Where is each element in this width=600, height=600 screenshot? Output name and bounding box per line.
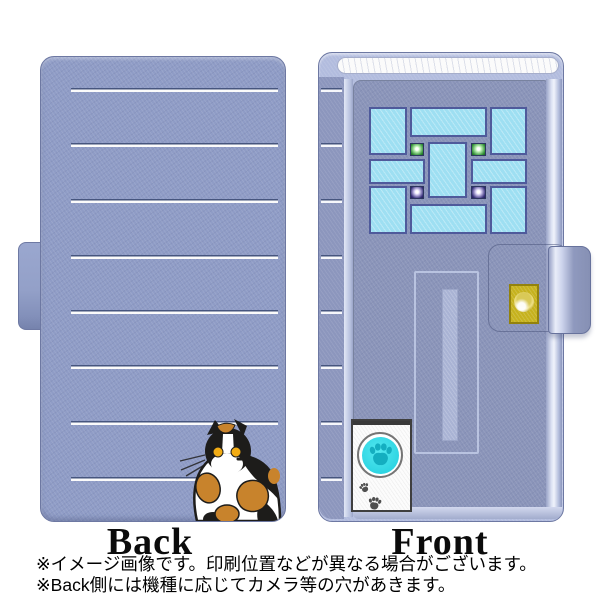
cat-eye-left	[213, 447, 223, 457]
doorbell-box	[351, 419, 412, 512]
mail-slot	[442, 289, 458, 441]
gold-snap-plate	[509, 284, 539, 324]
case-front-cover	[318, 52, 564, 522]
paw-prints-icon	[366, 496, 383, 511]
siding-stripe	[71, 88, 278, 92]
window-pane	[369, 159, 425, 184]
green-lamp	[471, 143, 486, 156]
window-pane-center	[428, 142, 467, 198]
window-pane	[471, 159, 527, 184]
window-pane	[490, 186, 527, 234]
doorbell-top-strip	[353, 421, 410, 425]
siding-stripe	[71, 255, 278, 259]
spine-stripe	[321, 477, 342, 481]
cat-eye-right	[231, 447, 241, 457]
purple-lamp	[410, 186, 424, 199]
door-window-grid	[366, 103, 529, 235]
gold-knob-icon	[514, 292, 534, 312]
paw-prints-icon	[357, 481, 371, 495]
window-pane	[410, 204, 487, 234]
mail-slot-panel	[414, 271, 479, 454]
transom-window	[337, 57, 559, 74]
window-pane	[490, 107, 527, 155]
window-pane	[369, 186, 407, 234]
spine-stripe	[321, 310, 342, 314]
magnet-flap-front	[548, 246, 591, 334]
siding-stripe	[71, 310, 278, 314]
window-pane	[369, 107, 407, 155]
spine-stripe	[321, 143, 342, 147]
siding-stripe	[71, 365, 278, 369]
siding-stripe	[71, 143, 278, 147]
spine-stripe	[321, 421, 342, 425]
spine-stripe	[321, 88, 342, 92]
spine-stripe	[321, 365, 342, 369]
spine-stripe	[321, 199, 342, 203]
case-back-cover	[40, 56, 286, 522]
spine-stripe	[321, 255, 342, 259]
disclaimer-notes: ※イメージ画像です。印刷位置などが異なる場合がございます。 ※Back側には機種…	[36, 554, 596, 596]
paw-print-icon	[367, 443, 394, 467]
window-pane	[410, 107, 487, 137]
purple-lamp	[471, 186, 486, 199]
green-lamp	[410, 143, 424, 156]
disclaimer-line-1: ※イメージ画像です。印刷位置などが異なる場合がございます。	[36, 554, 596, 575]
disclaimer-line-2: ※Back側には機種に応じてカメラ等の穴があきます。	[36, 575, 596, 596]
siding-stripe	[71, 199, 278, 203]
doorbell-button-ring	[357, 432, 403, 478]
calico-cat-illustration	[179, 417, 283, 522]
product-image-page: { "page": { "back_label": "Back", "front…	[0, 0, 600, 600]
doorbell-button	[362, 437, 399, 474]
